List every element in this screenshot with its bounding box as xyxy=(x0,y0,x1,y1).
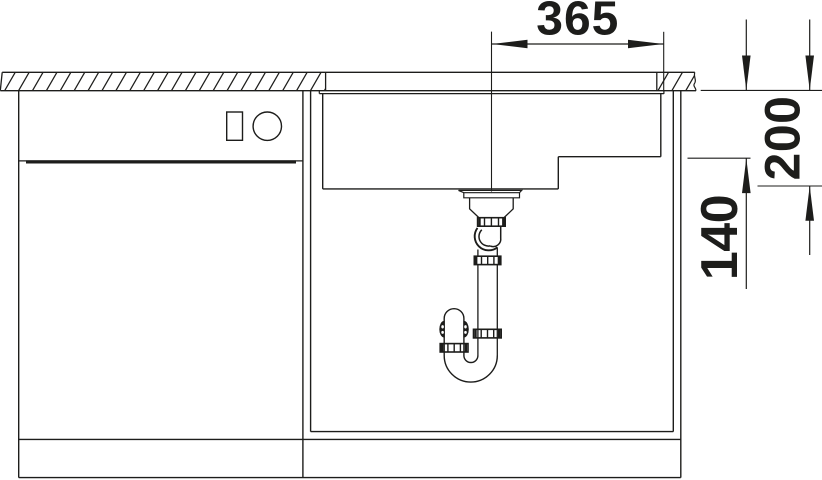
svg-text:365: 365 xyxy=(536,0,619,46)
svg-text:140: 140 xyxy=(691,195,749,280)
svg-text:200: 200 xyxy=(754,96,810,181)
